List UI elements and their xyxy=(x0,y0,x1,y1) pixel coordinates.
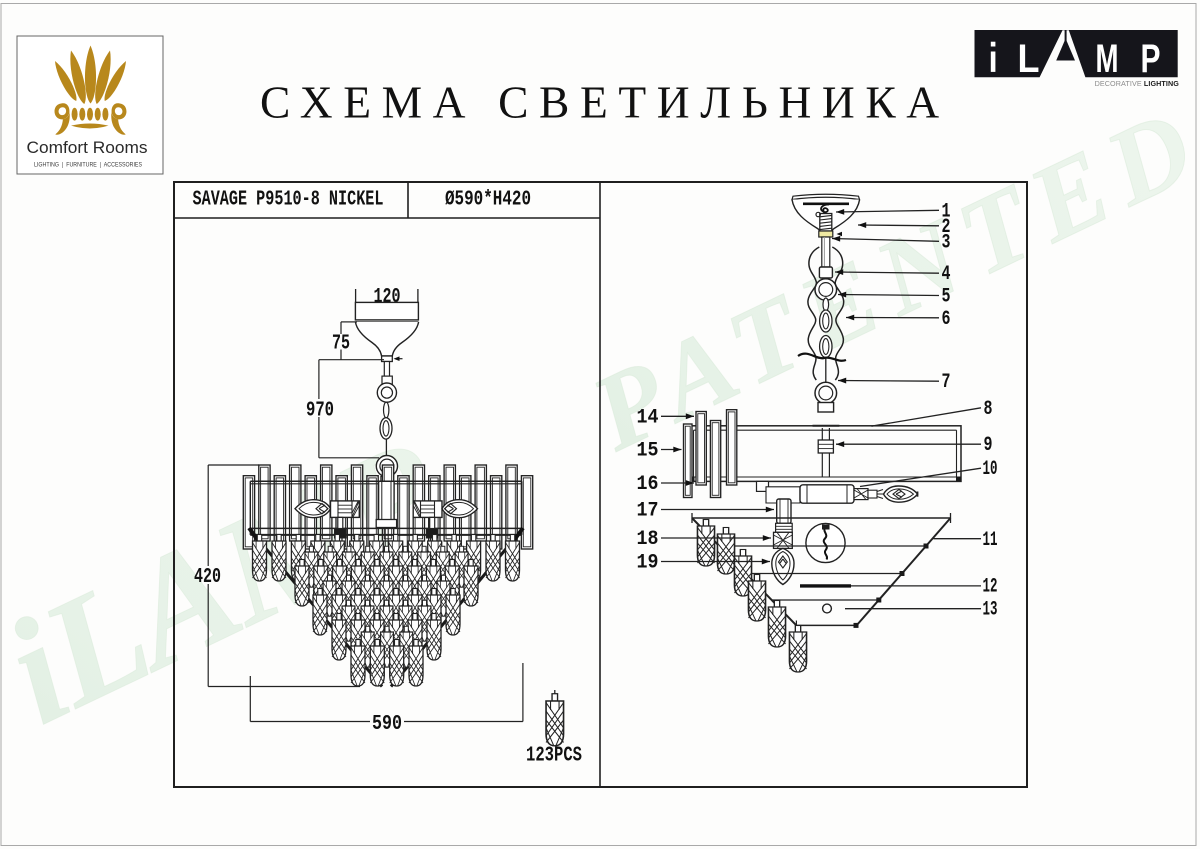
svg-text:Ø590*H420: Ø590*H420 xyxy=(445,189,531,212)
svg-text:СХЕМА СВЕТИЛЬНИКА: СХЕМА СВЕТИЛЬНИКА xyxy=(260,77,950,128)
svg-text:12: 12 xyxy=(983,576,998,599)
svg-text:9: 9 xyxy=(984,434,993,457)
svg-text:7: 7 xyxy=(942,371,951,394)
svg-text:590: 590 xyxy=(372,713,402,736)
svg-text:16: 16 xyxy=(637,473,659,496)
svg-text:SAVAGE P9510-8 NICKEL: SAVAGE P9510-8 NICKEL xyxy=(193,189,384,212)
svg-text:LIGHTING | FURNITURE | ACC: LIGHTING | FURNITURE | ACCESSORIES xyxy=(34,162,142,169)
svg-text:17: 17 xyxy=(637,500,659,523)
svg-text:19: 19 xyxy=(637,552,659,575)
svg-text:DECORATIVE LIGHTING: DECORATIVE LIGHTING xyxy=(1095,79,1180,88)
svg-text:8: 8 xyxy=(984,398,993,421)
svg-text:L: L xyxy=(1018,37,1040,81)
svg-text:11: 11 xyxy=(983,529,998,552)
svg-text:M: M xyxy=(1096,37,1119,81)
svg-text:Comfort Rooms: Comfort Rooms xyxy=(27,138,148,157)
svg-text:123PCS: 123PCS xyxy=(526,745,582,768)
svg-text:13: 13 xyxy=(983,599,998,622)
svg-text:P: P xyxy=(1141,37,1161,81)
svg-text:420: 420 xyxy=(194,566,221,589)
svg-text:6: 6 xyxy=(942,308,951,331)
svg-text:3: 3 xyxy=(942,231,951,254)
svg-text:5: 5 xyxy=(942,286,951,309)
svg-text:18: 18 xyxy=(637,528,659,551)
svg-text:10: 10 xyxy=(983,458,998,481)
svg-text:970: 970 xyxy=(306,400,334,423)
svg-text:75: 75 xyxy=(332,333,350,356)
svg-text:15: 15 xyxy=(637,440,659,463)
svg-text:14: 14 xyxy=(637,406,659,429)
svg-text:4: 4 xyxy=(942,263,951,286)
